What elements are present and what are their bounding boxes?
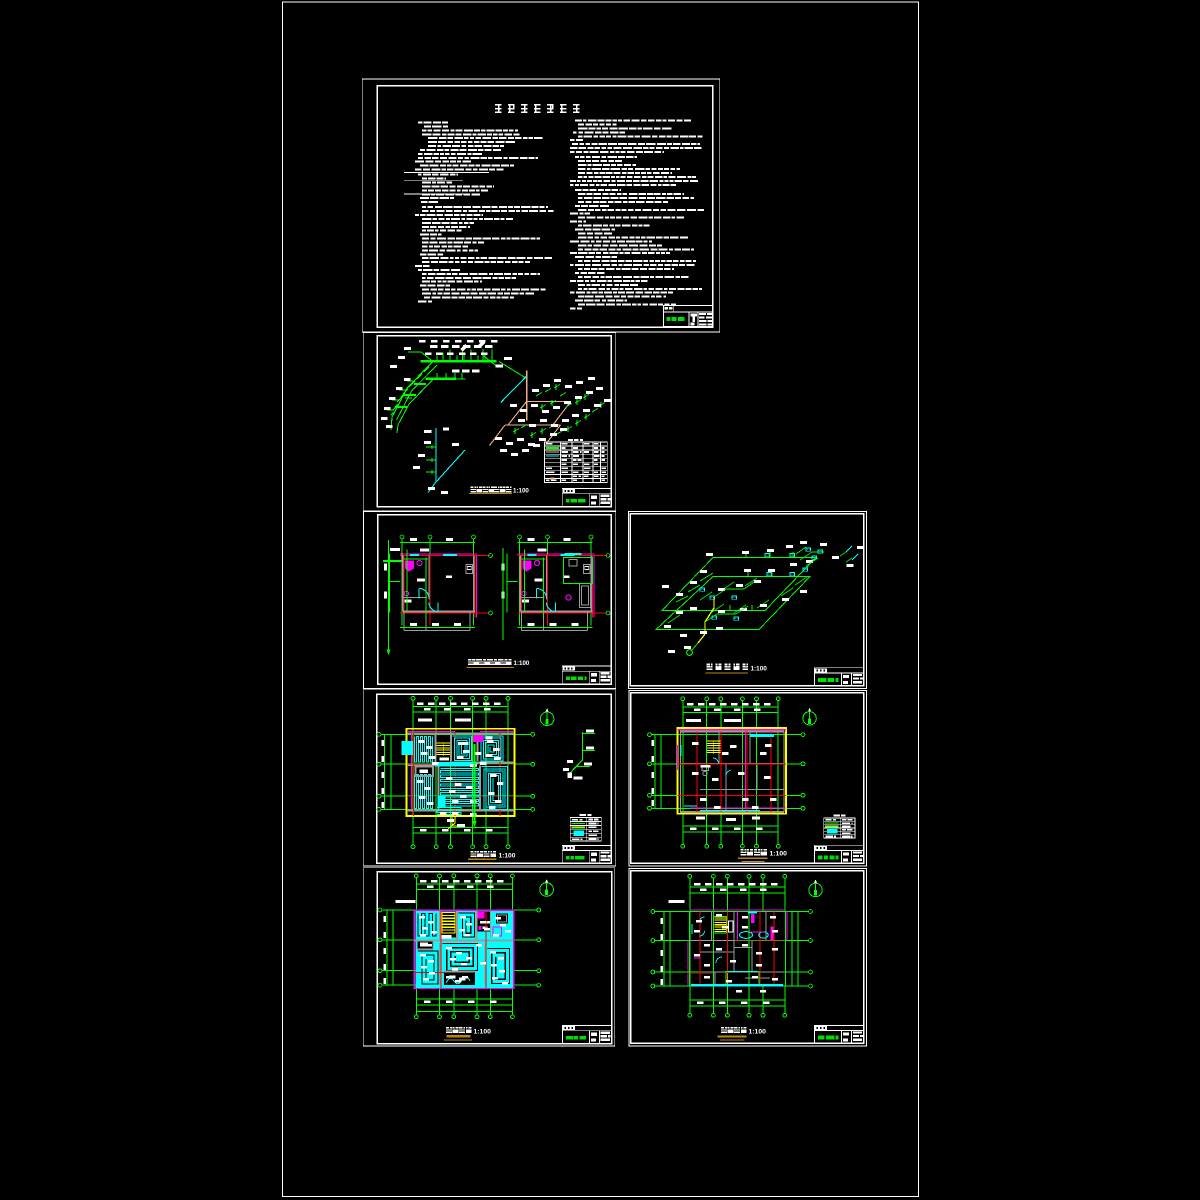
- svg-text:1:100: 1:100: [474, 1029, 492, 1036]
- svg-text:1:100: 1:100: [513, 487, 529, 494]
- svg-text:1:100: 1:100: [751, 665, 768, 672]
- svg-text:1:100: 1:100: [514, 660, 530, 667]
- svg-text:1:100: 1:100: [499, 852, 516, 859]
- svg-text:1:100: 1:100: [749, 1029, 767, 1036]
- svg-text:1:100: 1:100: [770, 851, 788, 858]
